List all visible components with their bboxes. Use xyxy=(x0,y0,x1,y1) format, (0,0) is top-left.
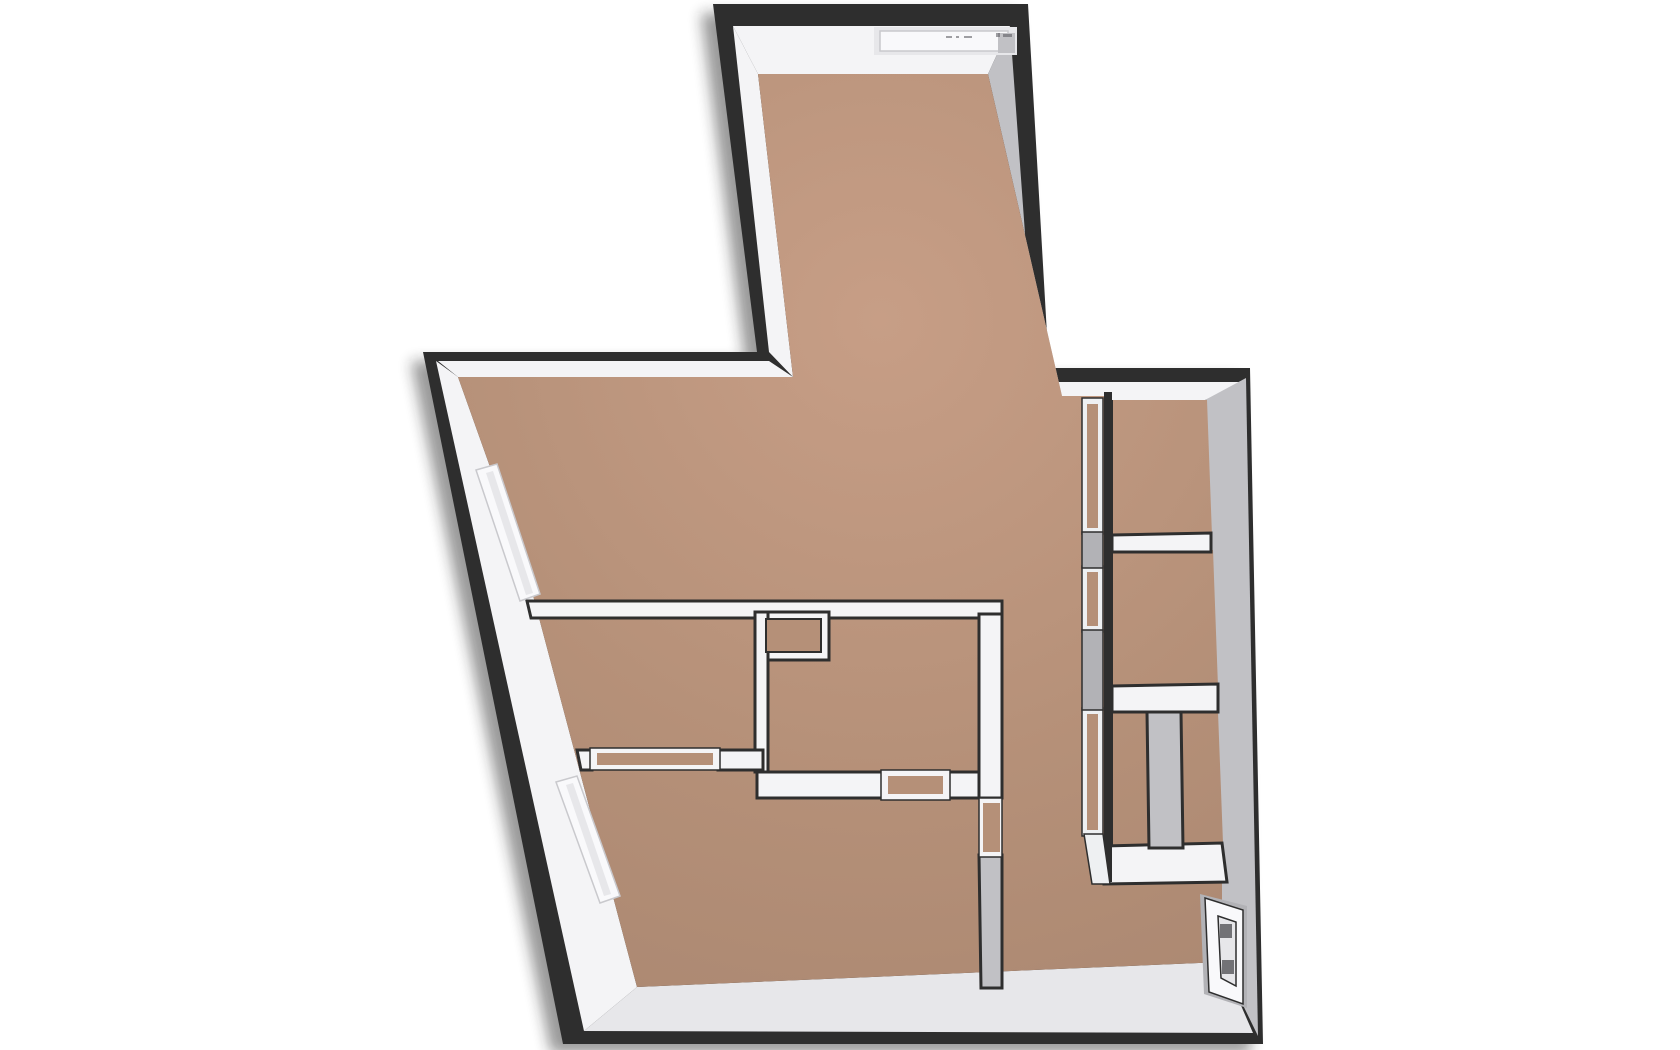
central-vertical-wall-upper xyxy=(979,614,1002,798)
entry-door xyxy=(1200,894,1247,1008)
window-dimension-marks xyxy=(996,33,1000,37)
window-dimension-marks xyxy=(1003,34,1012,37)
doorway-2-floor xyxy=(888,776,943,794)
window-dimension-marks xyxy=(964,36,972,38)
small-room-a-floor xyxy=(1113,712,1149,848)
shaft-interior xyxy=(766,619,821,652)
doorway-3-floor xyxy=(983,803,1000,852)
window-dimension-marks xyxy=(946,36,952,38)
partition-pier-1 xyxy=(1082,532,1103,568)
annex-room-1-floor xyxy=(1113,400,1212,536)
small-room-b-floor xyxy=(1181,712,1223,846)
floorplan-svg xyxy=(0,0,1680,1050)
floorplan-render xyxy=(0,0,1680,1050)
annex-divider-wall-1 xyxy=(1112,533,1211,552)
tower-window-sill xyxy=(880,31,1008,51)
window-dimension-marks xyxy=(956,36,959,38)
doorway-1-floor xyxy=(597,753,713,765)
partition-pier-2 xyxy=(1082,630,1103,710)
annex-west-wall xyxy=(1104,392,1112,882)
lower-right-wall-seg-a xyxy=(757,772,883,798)
partition-glass-2 xyxy=(1087,572,1098,626)
central-vertical-wall-lower xyxy=(979,855,1002,988)
lower-left-wall-seg-b xyxy=(718,750,763,770)
small-rooms-divider-wall xyxy=(1147,712,1183,848)
partition-glass-1 xyxy=(1087,404,1098,528)
partition-glass-3 xyxy=(1087,714,1098,830)
annex-divider-wall-2 xyxy=(1112,684,1218,712)
entry-door-mark-top xyxy=(1220,924,1232,938)
upper-west-wall-face xyxy=(438,361,793,377)
entry-door-mark-bottom xyxy=(1222,960,1234,974)
annex-room-2-floor xyxy=(1113,550,1218,687)
